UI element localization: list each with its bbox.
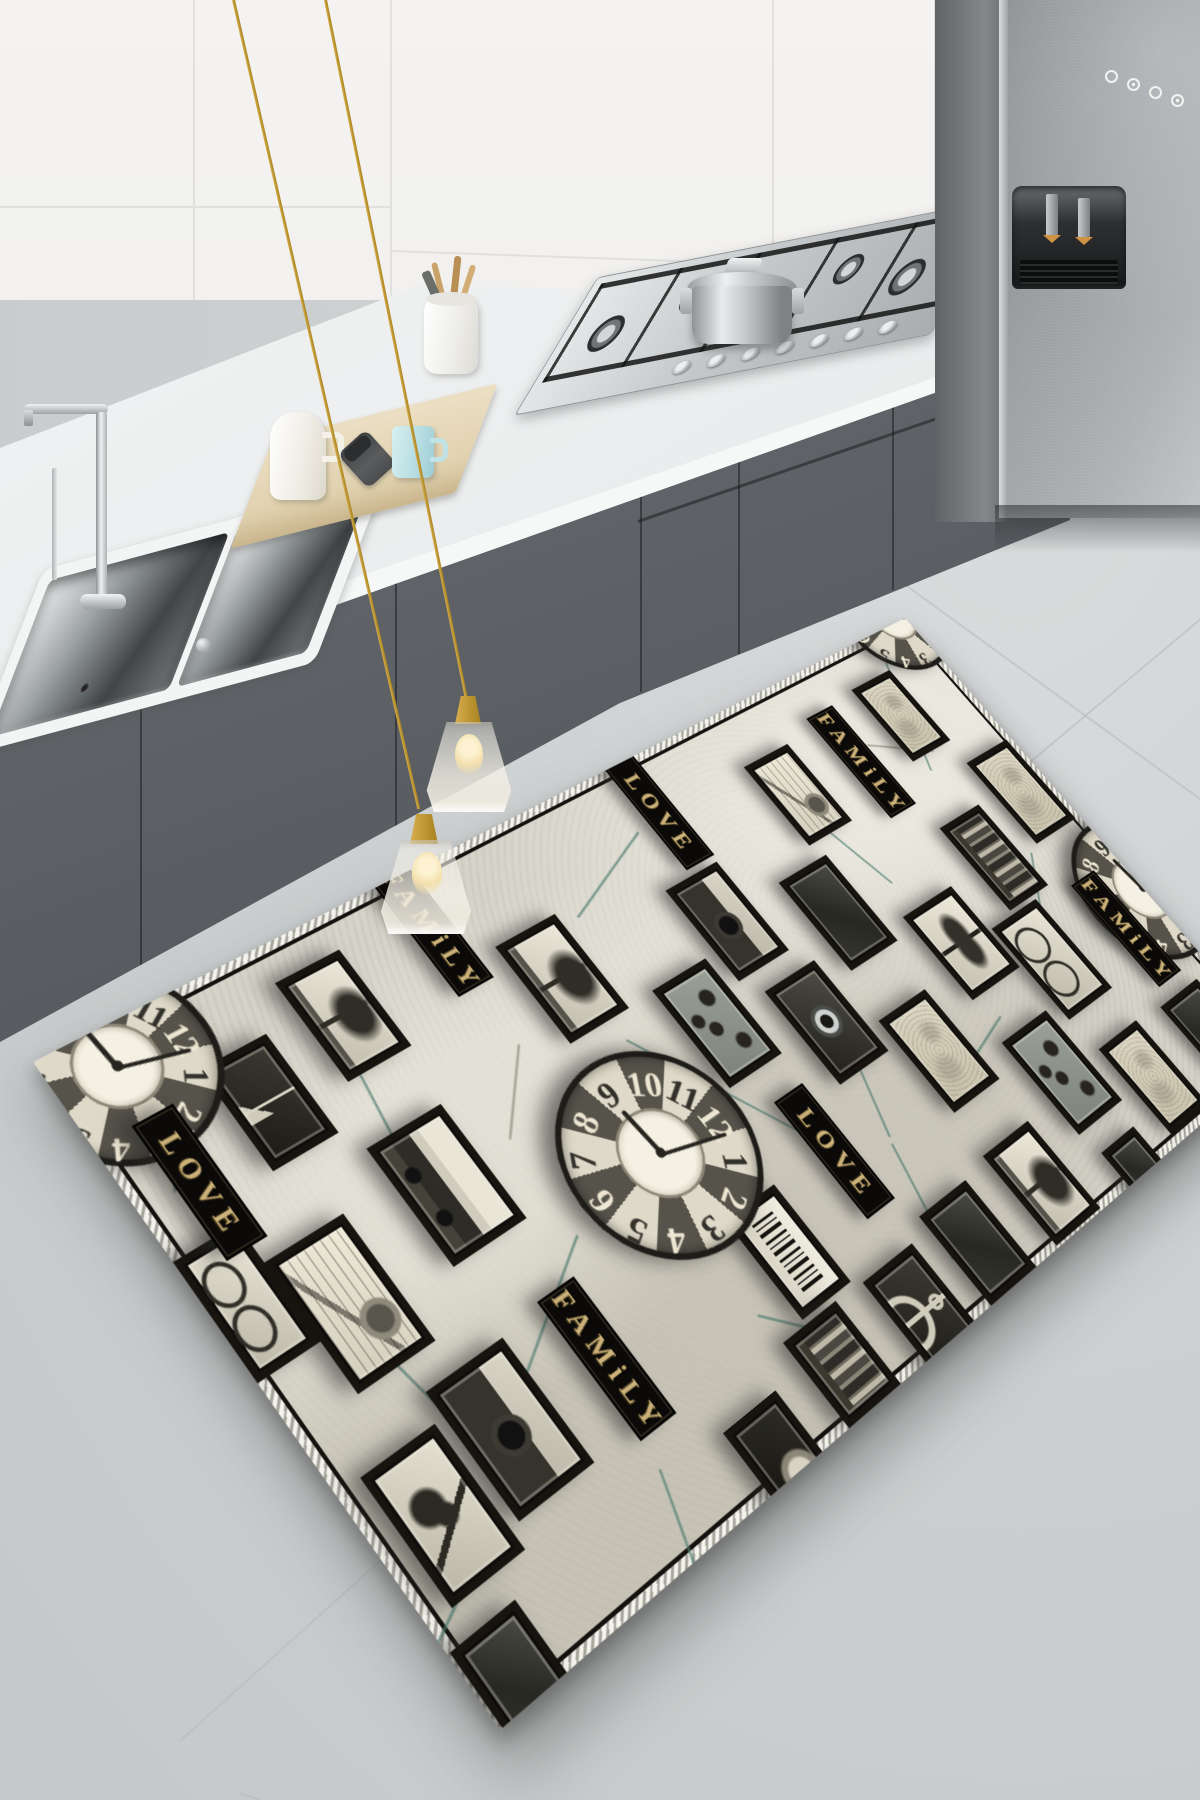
pot-body — [692, 286, 792, 344]
clock-numeral: 1 — [712, 1152, 755, 1170]
faucet — [96, 412, 107, 608]
refrigerator — [935, 0, 1200, 560]
water-dispenser[interactable] — [1012, 186, 1126, 289]
ring-dot-icon[interactable] — [1171, 94, 1184, 107]
faucet-side-sprayer — [52, 468, 57, 580]
water-nozzle — [1046, 194, 1058, 236]
sink-control-knob — [196, 638, 211, 653]
cooktop-knob — [669, 359, 693, 375]
kitchen-scene: 1212345678910111212345678910111212345678… — [0, 0, 1200, 1800]
pot-handle — [680, 288, 692, 314]
faucet-nozzle — [24, 410, 33, 426]
cooktop-knob — [704, 353, 728, 369]
fridge-door-edge — [999, 0, 1008, 518]
light-bulb — [412, 852, 442, 894]
fridge-side-panel — [935, 0, 1005, 522]
light-bulb — [455, 734, 483, 774]
cooktop-knob — [841, 326, 865, 342]
ring-dot-icon[interactable] — [1127, 78, 1140, 91]
clock-numeral: 2 — [711, 1181, 755, 1217]
clock-numeral: 4 — [110, 1129, 132, 1168]
utensil-holder — [424, 296, 478, 374]
pot-handle — [792, 288, 804, 314]
fridge-floor-shadow — [995, 505, 1200, 553]
cooktop-knob — [807, 333, 831, 349]
clock-numeral: 6 — [581, 1182, 625, 1220]
clock-numeral: 5 — [621, 1206, 652, 1253]
ring-icon[interactable] — [1149, 86, 1162, 99]
pitcher — [270, 412, 326, 500]
tile-seam — [772, 0, 774, 275]
tile-seam — [0, 206, 391, 208]
drip-tray-grille — [1020, 260, 1118, 284]
clock-numeral: 1 — [173, 1067, 215, 1084]
faucet-base — [80, 594, 126, 609]
tile-seam — [390, 0, 392, 300]
cabinet-door-seam — [395, 564, 397, 826]
ice-nozzle — [1078, 198, 1090, 238]
clock-numeral: 3 — [913, 647, 935, 669]
cabinet-door-seam — [640, 479, 642, 692]
cooking-pot — [688, 258, 796, 354]
clock-numeral: 8 — [565, 1105, 610, 1141]
cabinet-door-seam — [892, 392, 894, 590]
clock-numeral: 7 — [562, 1152, 607, 1171]
floor-seam — [240, 1792, 955, 1800]
clock-numeral: 4 — [664, 1218, 691, 1261]
cyan-mug-handle — [430, 438, 448, 462]
cooktop-knob — [876, 319, 900, 335]
clock-numeral: 3 — [692, 1205, 733, 1251]
cabinet-door-seam — [738, 445, 740, 654]
faucet-spout — [24, 404, 108, 414]
clock-numeral: 10 — [623, 1066, 666, 1106]
ring-icon[interactable] — [1105, 70, 1118, 83]
